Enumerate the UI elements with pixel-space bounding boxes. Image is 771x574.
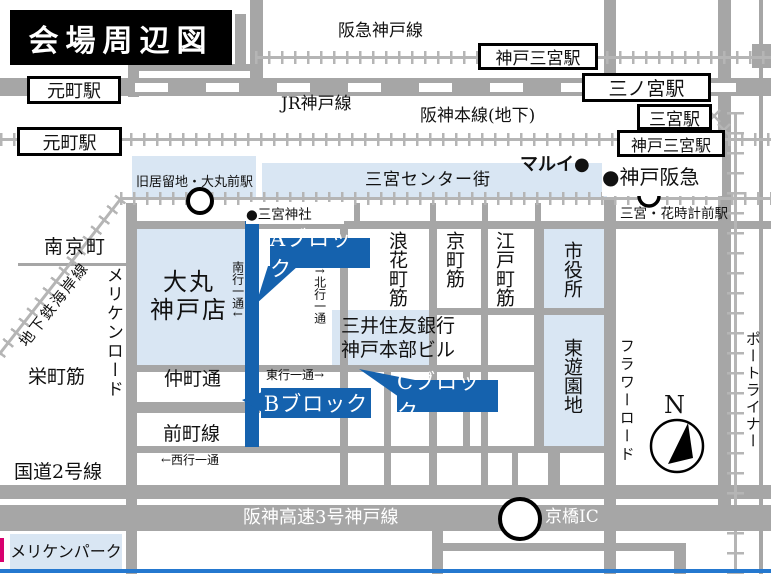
westbound-oneway-label: ←西行一通 <box>161 454 219 468</box>
nankinmachi-label: 南京町 <box>44 237 107 259</box>
sakaemachi-street-label: 栄町筋 <box>28 367 85 389</box>
marui-label: マルイ● <box>520 155 590 176</box>
hanadokei-station-label: 三宮・花時計前駅 <box>620 207 728 223</box>
station-label: 神戸三宮駅 <box>496 44 581 69</box>
meriken-park-text: メリケンパーク <box>10 543 122 561</box>
smbc-building-label: 三井住友銀行 神戸本部ビル <box>341 314 455 362</box>
city-hall-label: 市役所 <box>561 241 581 298</box>
daimaru-line2: 神戸店 <box>133 296 245 324</box>
daimaru-line1: 大丸 <box>133 268 245 296</box>
block-b-pointer <box>242 392 262 412</box>
kyobashi-ic-marker <box>500 499 540 539</box>
hanshin-expressway-label: 阪神高速3号神戸線 <box>243 508 398 529</box>
edomachi-street-label: 江戸町筋 <box>493 231 513 307</box>
southbound-oneway-label: 南行一通↓ <box>231 261 244 319</box>
block-c-text: Cブロック <box>397 366 498 426</box>
kobe-hankyu-text: ●神戸阪急 <box>602 161 699 190</box>
station-motomachi-hanshin: 元町駅 <box>17 127 122 156</box>
venue-area-map: Aブロック Bブロック Cブロック 会場周辺図 阪急神戸線 JR神戸線 阪神本線… <box>0 0 771 574</box>
eastbound-oneway-label: 東行一通→ <box>266 369 324 383</box>
naniwamachi-street-label: 浪花町筋 <box>386 231 406 307</box>
higashi-yuenchi-label: 東遊園地 <box>561 338 581 414</box>
station-sannomiya-jr: 三ノ宮駅 <box>582 73 711 102</box>
kyukyoryuchi-station-marker <box>188 189 212 213</box>
nakamachi-street-label: 仲町通 <box>164 369 221 391</box>
flower-road-label: フラワーロード <box>618 338 634 464</box>
map-title-text: 会場周辺図 <box>29 16 214 60</box>
station-label: 元町駅 <box>47 77 101 103</box>
meriken-road-label: メリケンロード <box>103 266 121 399</box>
station-kobe-sannomiya-hankyu: 神戸三宮駅 <box>478 43 598 70</box>
bottom-border-line <box>0 569 771 573</box>
hanshin-line-label: 阪神本線(地下) <box>420 107 535 127</box>
block-b-label: Bブロック <box>261 388 371 418</box>
hankyu-line-label: 阪急神戸線 <box>338 22 423 42</box>
compass-north-label: N <box>664 392 685 420</box>
shrine-text: ●三宮神社 <box>246 203 312 223</box>
northbound-oneway-label: ↑北行一通 <box>313 266 326 324</box>
station-motomachi-jr: 元町駅 <box>27 76 121 104</box>
maemachi-street-label: 前町線 <box>163 424 220 446</box>
sannomiya-shrine-label-box: ●三宮神社 <box>246 202 344 224</box>
station-sannomiya-subway: 三宮駅 <box>637 104 712 130</box>
daimaru-label: 大丸 神戸店 <box>133 268 245 324</box>
route2-label: 国道2号線 <box>14 462 102 484</box>
meriken-park-label: メリケンパーク <box>10 534 122 570</box>
block-a-label: Aブロック <box>270 238 370 268</box>
kyukyoryuchi-station-label: 旧居留地・大丸前駅 <box>136 176 253 191</box>
smbc-line2: 神戸本部ビル <box>341 338 455 362</box>
station-label: 神戸三宮駅 <box>631 132 711 156</box>
kyomachi-street-label: 京町筋 <box>443 231 463 288</box>
block-b-text: Bブロック <box>264 388 368 418</box>
kobe-hankyu-label-box: ●神戸阪急 <box>602 155 722 196</box>
map-title: 会場周辺図 <box>10 10 232 65</box>
station-label: 三宮駅 <box>649 105 700 130</box>
block-c-label: Cブロック <box>397 380 498 412</box>
station-kobe-sannomiya-hanshin: 神戸三宮駅 <box>617 130 725 157</box>
jr-line-label: JR神戸線 <box>281 95 352 115</box>
smbc-line1: 三井住友銀行 <box>341 314 455 338</box>
portliner-label: ポートライナー <box>744 331 760 450</box>
station-label: 元町駅 <box>43 129 97 155</box>
station-label: 三ノ宮駅 <box>608 74 684 101</box>
center-street-label: 三宮センター街 <box>365 171 491 191</box>
kyobashi-ic-label: 京橋IC <box>545 508 599 528</box>
